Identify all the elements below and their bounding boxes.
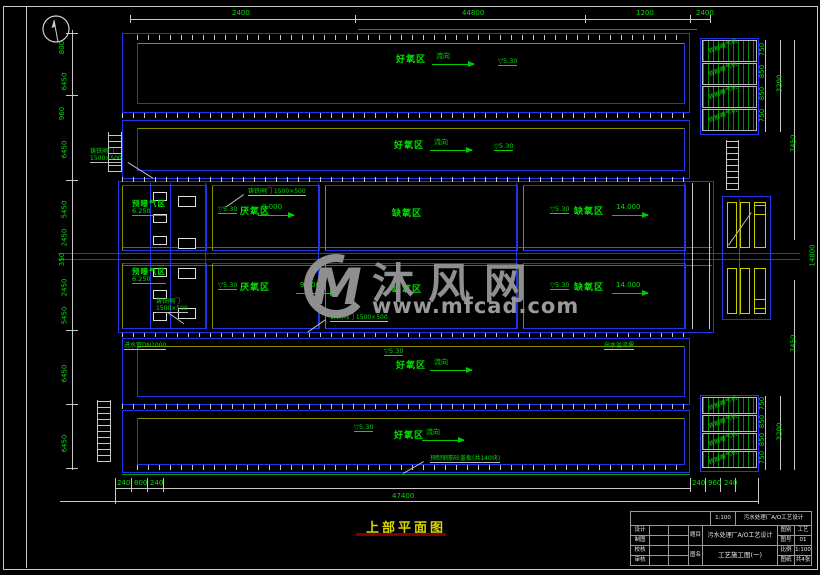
zone-sub: 6.250: [132, 208, 166, 216]
dim-text: 750: [759, 109, 766, 122]
dim-text: 2400: [696, 10, 714, 17]
dim-text: 800: [134, 480, 147, 487]
aerator-label: 转刷曝气机: [707, 36, 738, 56]
titleblock-left-label-3: 审核: [630, 555, 650, 566]
aerator-cell: 转刷曝气机: [702, 63, 757, 85]
dim-text: 350: [59, 253, 66, 266]
dim-text: 850: [759, 433, 766, 446]
dim-text: 5450: [61, 201, 68, 219]
zone-label-r1c4: 缺氧区: [574, 208, 604, 218]
dim-text: 3200: [776, 423, 783, 441]
dim-text: 14800: [810, 244, 817, 266]
dist-cell-4: [754, 205, 766, 215]
mid-divider-1a: [205, 183, 206, 329]
dim-text: 44800: [462, 10, 484, 17]
flow-arrow: [258, 215, 294, 216]
pier-ticks-b4: [122, 404, 688, 409]
leader-inlet: 进水管DN1000: [124, 342, 166, 350]
dim-line-bottom-2: [60, 501, 758, 502]
flow-arrow: [612, 215, 648, 216]
zone-label-r2c1: 预曝气区 6.250: [132, 268, 166, 284]
watermark-url: www.mfcad.com: [372, 294, 579, 318]
zone-label-basin-top: 好氧区: [396, 56, 426, 66]
dim-tick-bot-5: [690, 478, 691, 492]
flow-label: 9.000: [262, 204, 282, 211]
gate-9: [178, 268, 196, 279]
gate-3: [153, 236, 167, 245]
dim-tick-top-3: [585, 15, 586, 23]
dim-text: 850: [759, 415, 766, 428]
titleblock-drawing: 工艺施工图(一): [702, 545, 778, 566]
basin-top-inner: [137, 43, 685, 104]
pier-ticks-top: [137, 35, 683, 40]
dim-text: 6450: [61, 435, 68, 453]
dim-tick-top-1: [130, 15, 131, 23]
cell-r1c4: [523, 185, 686, 251]
cad-drawing-canvas: 转刷曝气机 转刷曝气机 转刷曝气机 转刷曝气机 转刷曝气机 转刷曝气机 转刷曝气…: [0, 0, 820, 575]
elevation-mark: ▽5.30: [384, 348, 403, 356]
aerator-cell: 转刷曝气机: [702, 397, 757, 414]
titleblock-left-cell: [668, 555, 689, 566]
dim-line-right-far-2: [794, 280, 795, 470]
dim-text: 240: [150, 480, 163, 487]
dim-text: 240: [692, 480, 705, 487]
mid-divider-4a: [684, 183, 685, 329]
elevation-mark: ▽5.30: [218, 206, 237, 214]
dim-text: 1200: [636, 10, 654, 17]
aerator-bank-bottom: 转刷曝气机 转刷曝气机 转刷曝气机 转刷曝气机: [700, 395, 759, 472]
svg-text:M: M: [312, 258, 362, 316]
dim-text: 750: [759, 451, 766, 464]
bottom-green-line: [122, 474, 690, 475]
dim-tick-top-4: [690, 15, 691, 23]
north-arrow-icon: [38, 12, 74, 48]
titleblock-left-cell: [649, 555, 669, 566]
titleblock-right-value-3: 共4张: [794, 555, 812, 566]
leader-gate-2: 铸铁闸门 1500×500: [248, 188, 306, 196]
mid-end-wall-1: [692, 183, 693, 329]
elevation-mark: ▽5.30: [354, 424, 373, 432]
zone-label-r2c2: 厌氧区: [240, 284, 270, 294]
dim-line-bottom-1: [115, 488, 690, 489]
flow-arrow: [430, 370, 472, 371]
dist-cell-8: [754, 299, 766, 309]
dim-text: 2450: [61, 279, 68, 297]
aerator-cell: 转刷曝气机: [702, 451, 757, 468]
flow-arrow: [612, 293, 648, 294]
elevation-mark: ▽5.30: [498, 58, 517, 66]
zone-sub: 6.250: [132, 276, 166, 284]
dim-text: 960: [708, 480, 721, 487]
zone-label-basin-second: 好氧区: [394, 142, 424, 152]
titleblock-drawing-label: 图名: [688, 545, 703, 566]
dim-text: 850: [759, 65, 766, 78]
dim-text: 6450: [61, 365, 68, 383]
zone-label-r2c4: 缺氧区: [574, 284, 604, 294]
titleblock-cell-empty: [630, 511, 711, 526]
dim-text: 850: [759, 87, 766, 100]
dist-cell-6: [740, 268, 750, 314]
flow-label: 14.000: [616, 282, 641, 289]
titleblock-project-label: 题目: [688, 525, 703, 546]
aerator-cell: 转刷曝气机: [702, 433, 757, 450]
dim-text: 6450: [61, 73, 68, 91]
flow-label: 流向: [436, 53, 450, 60]
dim-text: 6450: [61, 141, 68, 159]
leader-gate-3: 铸铁闸门 1500×500: [156, 298, 188, 313]
elevation-mark: ▽5.30: [550, 282, 569, 290]
dim-tick-left-1: [66, 33, 78, 34]
flow-arrow: [432, 64, 474, 65]
titleblock-scale-top: 1:100: [710, 511, 736, 526]
dist-cell-1: [727, 202, 737, 248]
dim-text: 7450: [790, 135, 797, 153]
dim-tick-bot-2: [131, 478, 132, 492]
flow-label: 14.000: [616, 204, 641, 211]
aerator-cell: 转刷曝气机: [702, 40, 757, 62]
flow-arrow: [422, 440, 464, 441]
zone-label-r1c1: 预曝气区 6.250: [132, 200, 166, 216]
leader-cover: 预制钢筋砼盖板(共140块): [430, 455, 500, 463]
flow-arrow: [430, 150, 472, 151]
dim-text: 750: [759, 397, 766, 410]
titleblock-project: 污水处理厂A/O工艺设计: [702, 525, 778, 546]
dim-text: 800: [59, 41, 66, 54]
mid-end-wall-2: [709, 183, 710, 329]
dim-tick-left-6: [66, 468, 78, 469]
aerator-cell: 转刷曝气机: [702, 86, 757, 108]
elevation-mark: ▽5.30: [550, 206, 569, 214]
dim-tick-left-4: [66, 330, 78, 331]
pier-ticks-b1b2: [122, 113, 688, 118]
ladder-left-2: [97, 400, 111, 462]
titleblock-school: 污水处理厂A/O工艺设计: [735, 511, 812, 526]
dist-red-centerline: [739, 199, 740, 315]
dim-text: 7450: [790, 335, 797, 353]
leader-gate-1: 铸铁闸门 1500×500: [90, 148, 122, 163]
dim-text: 2450: [61, 229, 68, 247]
drawing-title-underline: [356, 533, 446, 536]
dim-text: 5450: [61, 307, 68, 325]
sheet-binding-line: [26, 6, 27, 568]
dim-text: 3200: [776, 75, 783, 93]
aerator-cell: 转刷曝气机: [702, 415, 757, 432]
dim-tick-left-3: [66, 180, 78, 181]
aerator-label: 转刷曝气机: [707, 393, 738, 413]
elevation-mark: ▽5.30: [494, 143, 513, 151]
dist-cell-5: [727, 268, 737, 314]
dim-tick-top-2: [355, 15, 356, 23]
dim-text: 240: [724, 480, 737, 487]
zone-label-r1c3: 缺氧区: [392, 210, 422, 220]
dim-line-top: [130, 19, 710, 20]
zone-label-basin-third: 好氧区: [396, 362, 426, 372]
leader-outlet: 出水溢流堰: [604, 342, 634, 350]
gate-7: [178, 196, 196, 207]
watermark-logo: M: [298, 246, 374, 322]
dim-tick-left-2: [66, 95, 78, 96]
flow-label: 流向: [426, 429, 440, 436]
aerator-bank-top: 转刷曝气机 转刷曝气机 转刷曝气机 转刷曝气机: [700, 38, 759, 135]
ladder-right: [726, 140, 739, 190]
dim-text: 47400: [392, 493, 414, 500]
zone-label-basin-bottom: 好氧区: [394, 432, 424, 442]
dim-tick-left-5: [66, 404, 78, 405]
dim-text: 240: [117, 480, 130, 487]
pier-ticks-mid-top: [122, 177, 688, 182]
dim-tick-bot-9: [758, 478, 759, 504]
elevation-mark: ▽5.30: [218, 282, 237, 290]
flow-label: 流向: [434, 139, 448, 146]
titleblock-right-label-3: 图纸: [777, 555, 795, 566]
dim-tick-bot-1: [115, 478, 116, 504]
flow-label: 流向: [434, 359, 448, 366]
top-green-line: [358, 29, 697, 30]
dim-text: 2400: [232, 10, 250, 17]
dim-text: 960: [59, 107, 66, 120]
dim-text: 750: [759, 43, 766, 56]
aerator-cell: 转刷曝气机: [702, 109, 757, 131]
gate-8: [178, 238, 196, 249]
